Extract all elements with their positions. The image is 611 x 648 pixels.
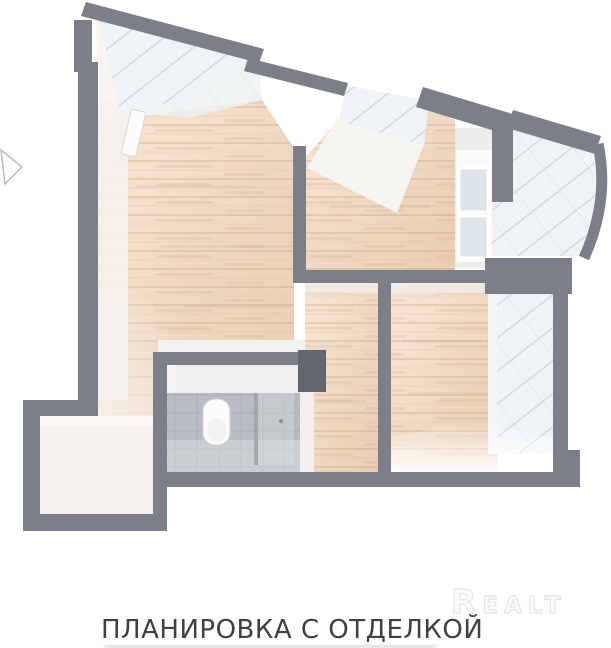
bathroom-wall-top-face <box>158 340 305 352</box>
drain <box>279 419 283 423</box>
wall-hall-bottom <box>23 514 167 531</box>
wall-balcony-left <box>492 118 513 202</box>
wall-bathroom-left <box>153 352 167 531</box>
wall-below-balcony <box>485 258 572 294</box>
wall-right <box>553 290 568 472</box>
shower-divider <box>254 393 258 465</box>
wall-interior-horizontal <box>293 270 494 283</box>
wall-nook-right <box>378 283 391 472</box>
shower-glass <box>254 393 294 465</box>
wall-left <box>78 62 98 416</box>
wall-bottom-right-foot <box>553 450 580 487</box>
bathroom-door-face <box>300 392 314 472</box>
wall-bottom <box>160 472 578 487</box>
wall-bathroom-pillar <box>298 350 326 392</box>
wall-interior-vertical <box>293 146 306 283</box>
floor-plan-image <box>0 0 611 648</box>
toilet-icon <box>203 399 230 445</box>
wall-bathroom-top <box>153 352 305 365</box>
window-band-bedroom <box>456 150 492 262</box>
screenshot-canvas: Realt ПЛАНИРОВКА С ОТДЕЛКОЙ <box>0 0 611 648</box>
cursor-arrow-icon <box>1 150 22 184</box>
caption: ПЛАНИРОВКА С ОТДЕЛКОЙ <box>101 615 521 645</box>
